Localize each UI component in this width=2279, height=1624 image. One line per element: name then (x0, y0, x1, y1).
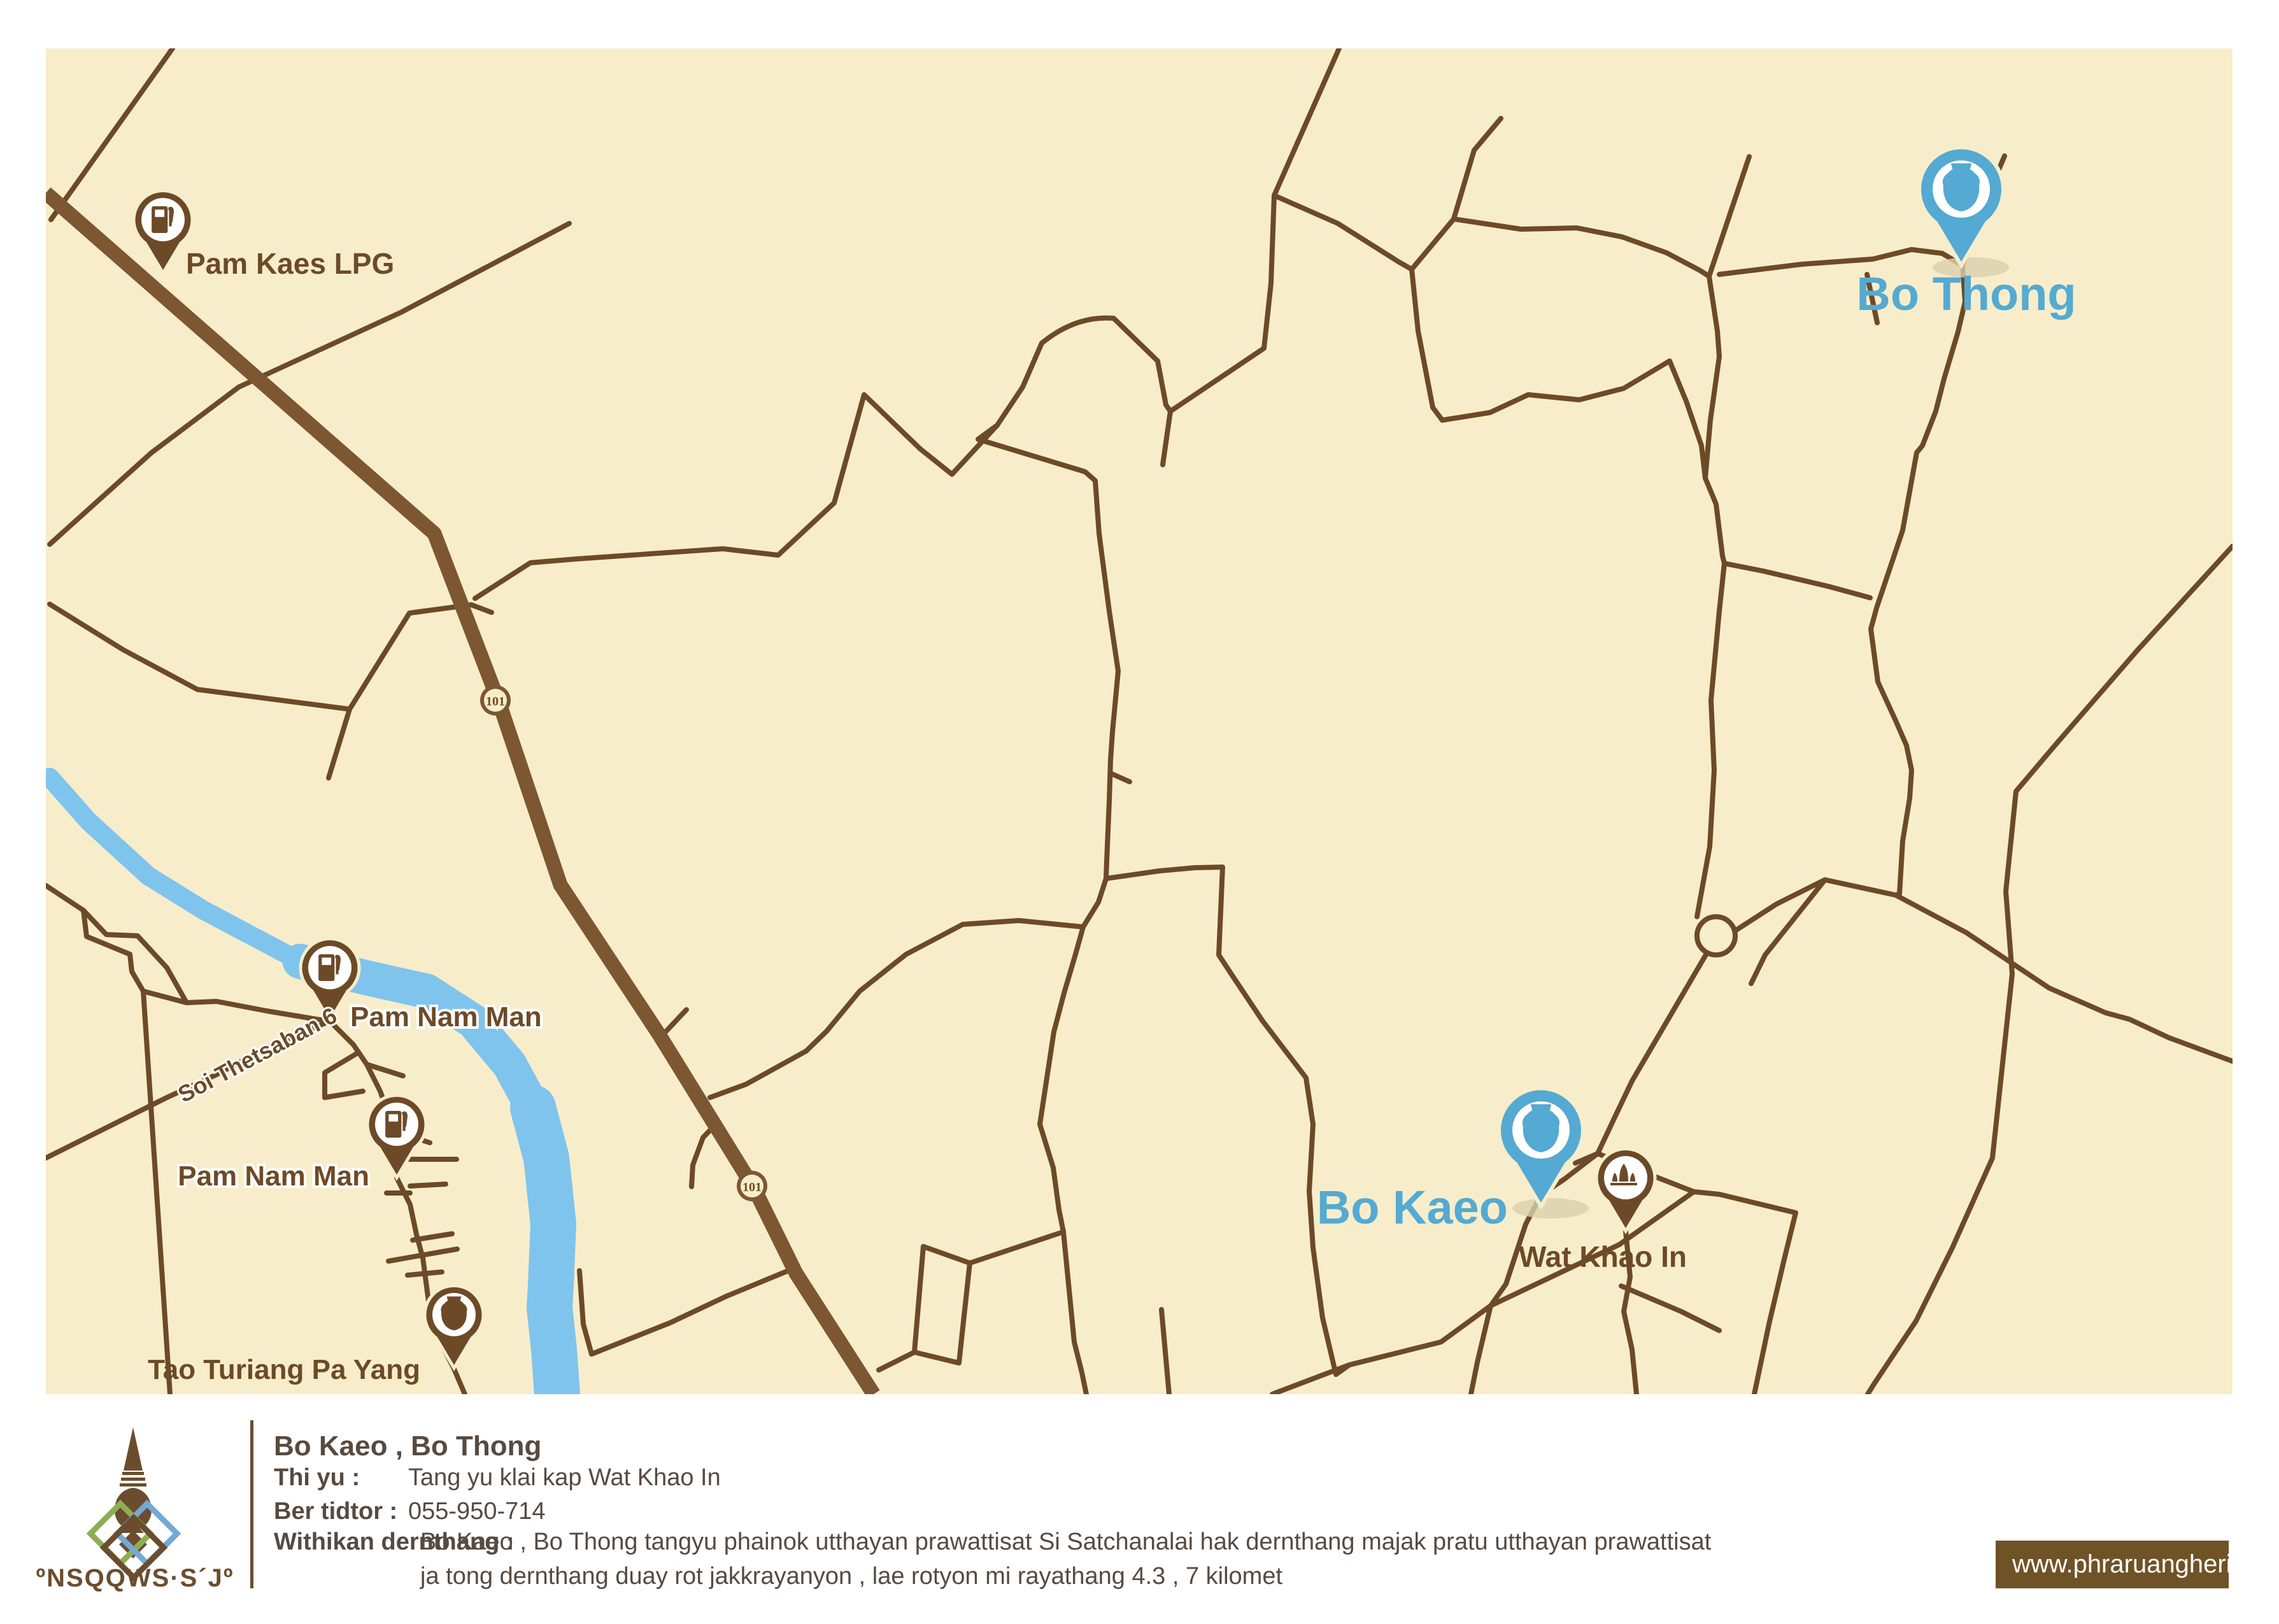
svg-text:ºNSQQWS·S´Jº: ºNSQQWS·S´Jº (36, 1564, 234, 1592)
svg-text:www.phraruangheritage.com: www.phraruangheritage.com (2012, 1550, 2279, 1578)
svg-text:Pam Nam Man: Pam Nam Man (350, 1001, 542, 1033)
svg-text:Pam Kaes LPG: Pam Kaes LPG (186, 247, 394, 280)
svg-text:Bo Thong: Bo Thong (1856, 267, 2076, 320)
svg-text:101: 101 (742, 1180, 762, 1194)
svg-text:Bo Kaeo , Bo Thong: Bo Kaeo , Bo Thong (274, 1430, 541, 1462)
svg-text:Pam Nam Man: Pam Nam Man (178, 1161, 369, 1192)
svg-text:055-950-714: 055-950-714 (408, 1498, 546, 1525)
svg-text:Thi yu :: Thi yu : (274, 1464, 360, 1491)
svg-text:Bo Kaeo , Bo Thong tangyu pha: Bo Kaeo , Bo Thong tangyu phainok utthay… (420, 1529, 1712, 1555)
svg-text:Tang yu klai kap Wat Khao In: Tang yu klai kap Wat Khao In (408, 1464, 721, 1491)
svg-text:101: 101 (486, 695, 505, 709)
svg-text:Tao Turiang Pa Yang: Tao Turiang Pa Yang (148, 1354, 420, 1385)
svg-text:Wat Khao In: Wat Khao In (1519, 1240, 1687, 1273)
svg-text:ja tong dernthang duay rot ja: ja tong dernthang duay rot jakkrayanyon … (420, 1563, 1282, 1590)
svg-text:Bo Kaeo: Bo Kaeo (1317, 1181, 1508, 1234)
svg-text:Ber tidtor :: Ber tidtor : (274, 1498, 397, 1525)
